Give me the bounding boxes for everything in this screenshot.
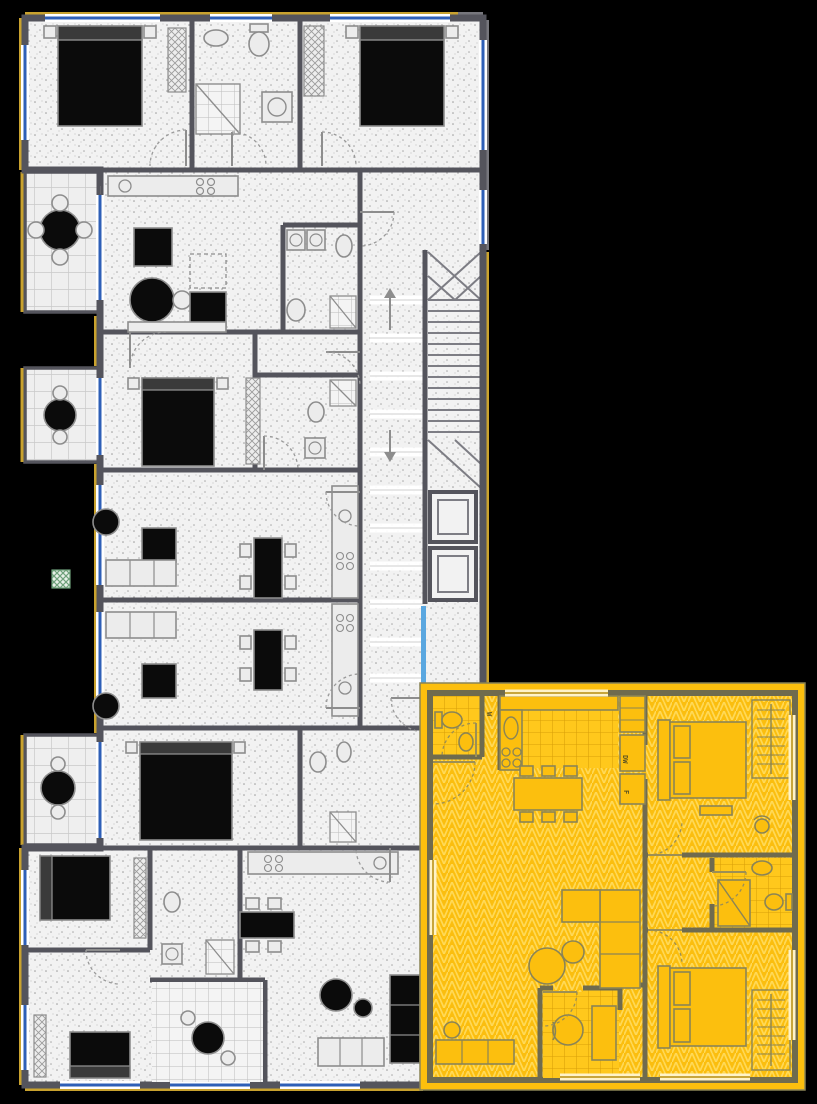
floor-plan-canvas: W DW F [0, 0, 817, 1104]
balcony-bottom-left [22, 735, 100, 845]
highlighted-apartment-unit[interactable]: W DW F [420, 683, 805, 1090]
elevator-shaft [430, 492, 476, 600]
balcony-top-left [22, 172, 100, 312]
unit-pantry-column: DW F [620, 696, 645, 804]
corridor-glass-wall [421, 606, 426, 688]
fridge-label: F [622, 790, 630, 794]
shaft-marker-green [52, 570, 70, 588]
floor-plan-svg: W DW F [0, 0, 817, 1104]
balcony-mid-left [22, 368, 100, 462]
dishwasher-label: DW [621, 755, 629, 764]
unit-5-garden-room [152, 982, 263, 1082]
